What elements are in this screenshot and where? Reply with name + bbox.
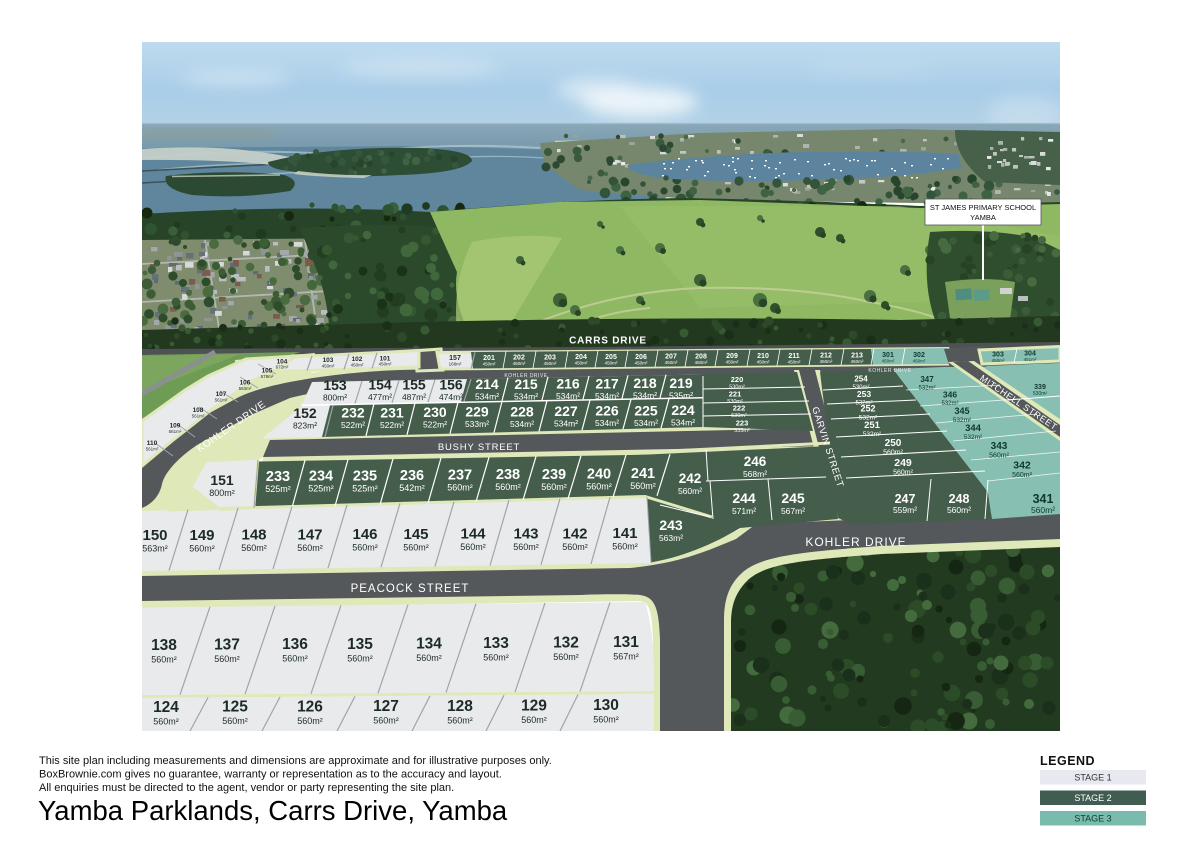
- svg-text:125: 125: [222, 699, 248, 716]
- svg-text:450m²: 450m²: [992, 358, 1005, 363]
- svg-text:221: 221: [729, 390, 742, 399]
- svg-text:143: 143: [513, 526, 538, 543]
- svg-text:154: 154: [368, 377, 392, 393]
- svg-text:450m²: 450m²: [851, 359, 864, 364]
- svg-text:450m²: 450m²: [820, 359, 833, 364]
- svg-text:PEACOCK STREET: PEACOCK STREET: [351, 583, 470, 595]
- svg-text:559m²: 559m²: [893, 505, 917, 515]
- svg-text:BoxBrownie.com gives no guaran: BoxBrownie.com gives no guarantee, warra…: [39, 769, 502, 781]
- svg-text:535m²: 535m²: [669, 390, 693, 400]
- svg-text:346: 346: [943, 390, 957, 400]
- svg-text:239: 239: [542, 467, 566, 483]
- svg-text:450m²: 450m²: [379, 362, 392, 367]
- svg-text:560m²: 560m²: [893, 470, 914, 477]
- svg-text:227: 227: [554, 403, 578, 419]
- svg-text:450m²: 450m²: [322, 363, 335, 368]
- svg-text:563m²: 563m²: [659, 533, 683, 543]
- svg-text:233: 233: [266, 469, 290, 485]
- svg-text:138: 138: [151, 637, 177, 654]
- svg-text:345: 345: [954, 406, 969, 416]
- svg-text:560m²: 560m²: [883, 450, 904, 457]
- svg-text:560m²: 560m²: [630, 481, 656, 491]
- svg-text:534m²: 534m²: [671, 418, 695, 428]
- svg-text:242: 242: [679, 471, 702, 486]
- svg-text:All enquiries must be directed: All enquiries must be directed to the ag…: [39, 782, 454, 794]
- svg-text:343: 343: [991, 441, 1008, 452]
- svg-text:STAGE 1: STAGE 1: [1074, 773, 1111, 783]
- svg-text:522m²: 522m²: [423, 420, 447, 430]
- svg-text:248: 248: [949, 492, 970, 506]
- svg-text:LEGEND: LEGEND: [1040, 754, 1095, 768]
- svg-text:135: 135: [347, 636, 373, 653]
- svg-text:124: 124: [153, 699, 179, 716]
- svg-text:560m²: 560m²: [513, 542, 539, 552]
- svg-text:534m²: 534m²: [634, 418, 658, 428]
- svg-text:534m²: 534m²: [554, 418, 578, 428]
- svg-text:560m²: 560m²: [447, 483, 473, 493]
- svg-text:560m²: 560m²: [521, 715, 547, 725]
- svg-text:477m²: 477m²: [368, 392, 392, 402]
- svg-text:151: 151: [210, 472, 234, 488]
- svg-text:217: 217: [595, 375, 619, 391]
- svg-text:534m²: 534m²: [595, 391, 619, 401]
- svg-text:571m²: 571m²: [732, 506, 756, 516]
- svg-text:450m²: 450m²: [665, 360, 678, 365]
- svg-text:560m²: 560m²: [151, 655, 177, 665]
- svg-text:Yamba Parklands, Carrs Drive,: Yamba Parklands, Carrs Drive, Yamba: [38, 795, 508, 826]
- svg-text:168m²: 168m²: [449, 362, 462, 367]
- svg-text:450m²: 450m²: [695, 360, 708, 365]
- svg-text:563m²: 563m²: [239, 386, 252, 391]
- svg-text:560m²: 560m²: [416, 653, 442, 663]
- svg-text:560m²: 560m²: [947, 505, 971, 515]
- svg-text:532m²: 532m²: [918, 386, 935, 392]
- svg-text:228: 228: [510, 403, 534, 419]
- svg-text:CARRS DRIVE: CARRS DRIVE: [569, 336, 647, 347]
- svg-text:450m²: 450m²: [483, 361, 496, 366]
- svg-text:344: 344: [965, 423, 982, 434]
- svg-text:127: 127: [373, 698, 399, 715]
- svg-text:216: 216: [556, 376, 580, 392]
- svg-text:560m²: 560m²: [495, 482, 521, 492]
- svg-text:560m²: 560m²: [403, 543, 429, 553]
- svg-text:149: 149: [189, 527, 214, 544]
- svg-text:450m²: 450m²: [757, 360, 770, 365]
- svg-text:561m²: 561m²: [215, 398, 228, 403]
- svg-text:525m²: 525m²: [352, 483, 378, 493]
- svg-text:474m²: 474m²: [439, 392, 463, 402]
- svg-text:800m²: 800m²: [323, 393, 347, 403]
- svg-text:450m²: 450m²: [635, 360, 648, 365]
- svg-text:535m²: 535m²: [734, 428, 750, 434]
- svg-text:560m²: 560m²: [612, 542, 638, 552]
- svg-text:451m²: 451m²: [1024, 357, 1037, 362]
- svg-text:148: 148: [241, 527, 266, 544]
- svg-text:144: 144: [460, 526, 486, 543]
- svg-text:560m²: 560m²: [586, 481, 612, 491]
- svg-text:450m²: 450m²: [726, 360, 739, 365]
- svg-text:126: 126: [297, 698, 323, 715]
- svg-text:245: 245: [781, 490, 805, 506]
- svg-text:800m²: 800m²: [209, 488, 235, 498]
- svg-text:560m²: 560m²: [347, 653, 373, 663]
- svg-text:220: 220: [731, 375, 744, 384]
- svg-text:560m²: 560m²: [222, 716, 248, 726]
- svg-text:251: 251: [864, 420, 881, 431]
- svg-text:145: 145: [403, 526, 428, 543]
- svg-text:152: 152: [293, 405, 317, 421]
- svg-text:224: 224: [671, 402, 695, 418]
- svg-text:222: 222: [733, 404, 746, 413]
- svg-text:567m²: 567m²: [613, 652, 639, 662]
- svg-text:250: 250: [885, 438, 902, 449]
- svg-text:560m²: 560m²: [189, 543, 215, 553]
- svg-text:141: 141: [612, 525, 637, 542]
- svg-text:533m²: 533m²: [465, 419, 489, 429]
- svg-text:561m²: 561m²: [169, 429, 182, 434]
- svg-text:131: 131: [613, 634, 639, 651]
- svg-text:560m²: 560m²: [447, 715, 473, 725]
- svg-text:450m²: 450m²: [788, 359, 801, 364]
- svg-text:147: 147: [297, 526, 322, 543]
- svg-text:247: 247: [895, 492, 916, 506]
- svg-text:156: 156: [439, 376, 463, 392]
- svg-text:253: 253: [857, 389, 871, 399]
- svg-text:KOHLER DRIVE: KOHLER DRIVE: [868, 368, 911, 374]
- svg-text:568m²: 568m²: [743, 469, 767, 479]
- svg-text:219: 219: [669, 375, 693, 391]
- svg-text:234: 234: [309, 469, 333, 485]
- svg-text:450m²: 450m²: [605, 361, 618, 366]
- svg-text:232: 232: [341, 405, 365, 421]
- svg-text:231: 231: [380, 404, 404, 420]
- svg-text:252: 252: [860, 404, 875, 414]
- svg-text:This site plan including measu: This site plan including measurements an…: [39, 755, 552, 767]
- svg-text:153: 153: [323, 377, 347, 393]
- svg-text:560m²: 560m²: [483, 653, 509, 663]
- svg-text:342: 342: [1013, 460, 1031, 472]
- svg-text:534m²: 534m²: [556, 391, 580, 401]
- svg-text:560m²: 560m²: [989, 453, 1010, 460]
- svg-text:450m²: 450m²: [351, 362, 364, 367]
- svg-text:534m²: 534m²: [510, 419, 534, 429]
- svg-text:136: 136: [282, 636, 308, 653]
- svg-text:243: 243: [659, 517, 683, 533]
- svg-text:133: 133: [483, 635, 509, 652]
- svg-text:347: 347: [920, 375, 934, 384]
- svg-text:534m²: 534m²: [514, 391, 538, 401]
- svg-text:254: 254: [854, 375, 868, 384]
- svg-text:560m²: 560m²: [541, 482, 567, 492]
- svg-text:YAMBA: YAMBA: [970, 213, 996, 222]
- svg-text:542m²: 542m²: [399, 483, 425, 493]
- svg-text:560m²: 560m²: [214, 654, 240, 664]
- svg-text:214: 214: [475, 376, 499, 392]
- svg-text:450m²: 450m²: [513, 361, 526, 366]
- svg-text:560m²: 560m²: [460, 542, 486, 552]
- svg-text:672m²: 672m²: [276, 365, 289, 370]
- svg-text:560m²: 560m²: [282, 654, 308, 664]
- svg-text:561m²: 561m²: [192, 414, 205, 419]
- svg-text:560m²: 560m²: [678, 486, 702, 496]
- svg-text:563m²: 563m²: [142, 544, 168, 554]
- svg-text:450m²: 450m²: [882, 359, 895, 364]
- svg-text:560m²: 560m²: [553, 652, 579, 662]
- svg-text:450m²: 450m²: [913, 359, 926, 364]
- svg-text:561m²: 561m²: [146, 447, 159, 452]
- svg-text:237: 237: [448, 468, 472, 484]
- svg-text:STAGE 2: STAGE 2: [1074, 793, 1111, 803]
- svg-text:560m²: 560m²: [241, 543, 267, 553]
- svg-text:560m²: 560m²: [153, 717, 179, 727]
- svg-text:230: 230: [423, 404, 447, 420]
- svg-text:132: 132: [553, 635, 579, 652]
- svg-text:532m²: 532m²: [964, 434, 983, 441]
- svg-text:226: 226: [595, 403, 619, 419]
- svg-text:534m²: 534m²: [633, 391, 657, 401]
- svg-text:249: 249: [894, 457, 912, 469]
- svg-text:236: 236: [400, 468, 424, 484]
- svg-text:450m²: 450m²: [544, 361, 557, 366]
- svg-text:522m²: 522m²: [341, 420, 365, 430]
- svg-text:578m²: 578m²: [261, 374, 274, 379]
- svg-text:525m²: 525m²: [265, 484, 291, 494]
- svg-text:246: 246: [744, 454, 767, 469]
- svg-text:534m²: 534m²: [475, 392, 499, 402]
- svg-text:487m²: 487m²: [402, 392, 426, 402]
- svg-text:238: 238: [496, 467, 520, 483]
- svg-text:525m²: 525m²: [308, 484, 334, 494]
- svg-text:450m²: 450m²: [575, 361, 588, 366]
- svg-text:530m²: 530m²: [1033, 391, 1048, 397]
- svg-text:241: 241: [631, 466, 655, 482]
- svg-text:560m²: 560m²: [562, 542, 588, 552]
- svg-text:560m²: 560m²: [373, 716, 399, 726]
- svg-text:560m²: 560m²: [297, 716, 323, 726]
- svg-text:134: 134: [416, 635, 442, 652]
- svg-text:130: 130: [593, 697, 619, 714]
- svg-text:BUSHY STREET: BUSHY STREET: [438, 442, 520, 453]
- svg-text:150: 150: [142, 527, 167, 544]
- svg-text:218: 218: [633, 375, 657, 391]
- svg-text:KOHLER DRIVE: KOHLER DRIVE: [504, 373, 547, 379]
- svg-text:339: 339: [1034, 384, 1046, 391]
- svg-text:560m²: 560m²: [1012, 472, 1033, 479]
- svg-text:341: 341: [1033, 492, 1054, 506]
- svg-text:560m²: 560m²: [593, 715, 619, 725]
- svg-text:560m²: 560m²: [1031, 505, 1055, 515]
- svg-text:244: 244: [732, 490, 756, 506]
- svg-text:137: 137: [214, 637, 240, 654]
- svg-text:129: 129: [521, 698, 547, 715]
- svg-text:155: 155: [402, 377, 426, 393]
- svg-text:142: 142: [562, 525, 587, 542]
- svg-text:235: 235: [353, 468, 377, 484]
- svg-text:567m²: 567m²: [781, 506, 805, 516]
- svg-text:560m²: 560m²: [352, 543, 378, 553]
- svg-text:229: 229: [465, 404, 489, 420]
- svg-text:223: 223: [736, 419, 749, 428]
- svg-text:ST JAMES PRIMARY SCHOOL: ST JAMES PRIMARY SCHOOL: [930, 203, 1036, 212]
- svg-text:240: 240: [587, 466, 611, 482]
- svg-text:128: 128: [447, 698, 473, 715]
- svg-text:146: 146: [352, 526, 377, 543]
- svg-text:534m²: 534m²: [595, 418, 619, 428]
- svg-text:522m²: 522m²: [380, 420, 404, 430]
- svg-text:KOHLER DRIVE: KOHLER DRIVE: [805, 535, 906, 549]
- svg-text:560m²: 560m²: [297, 543, 323, 553]
- svg-text:225: 225: [634, 402, 658, 418]
- svg-text:532m²: 532m²: [863, 431, 882, 438]
- svg-text:STAGE 3: STAGE 3: [1074, 814, 1111, 824]
- svg-text:823m²: 823m²: [293, 421, 317, 431]
